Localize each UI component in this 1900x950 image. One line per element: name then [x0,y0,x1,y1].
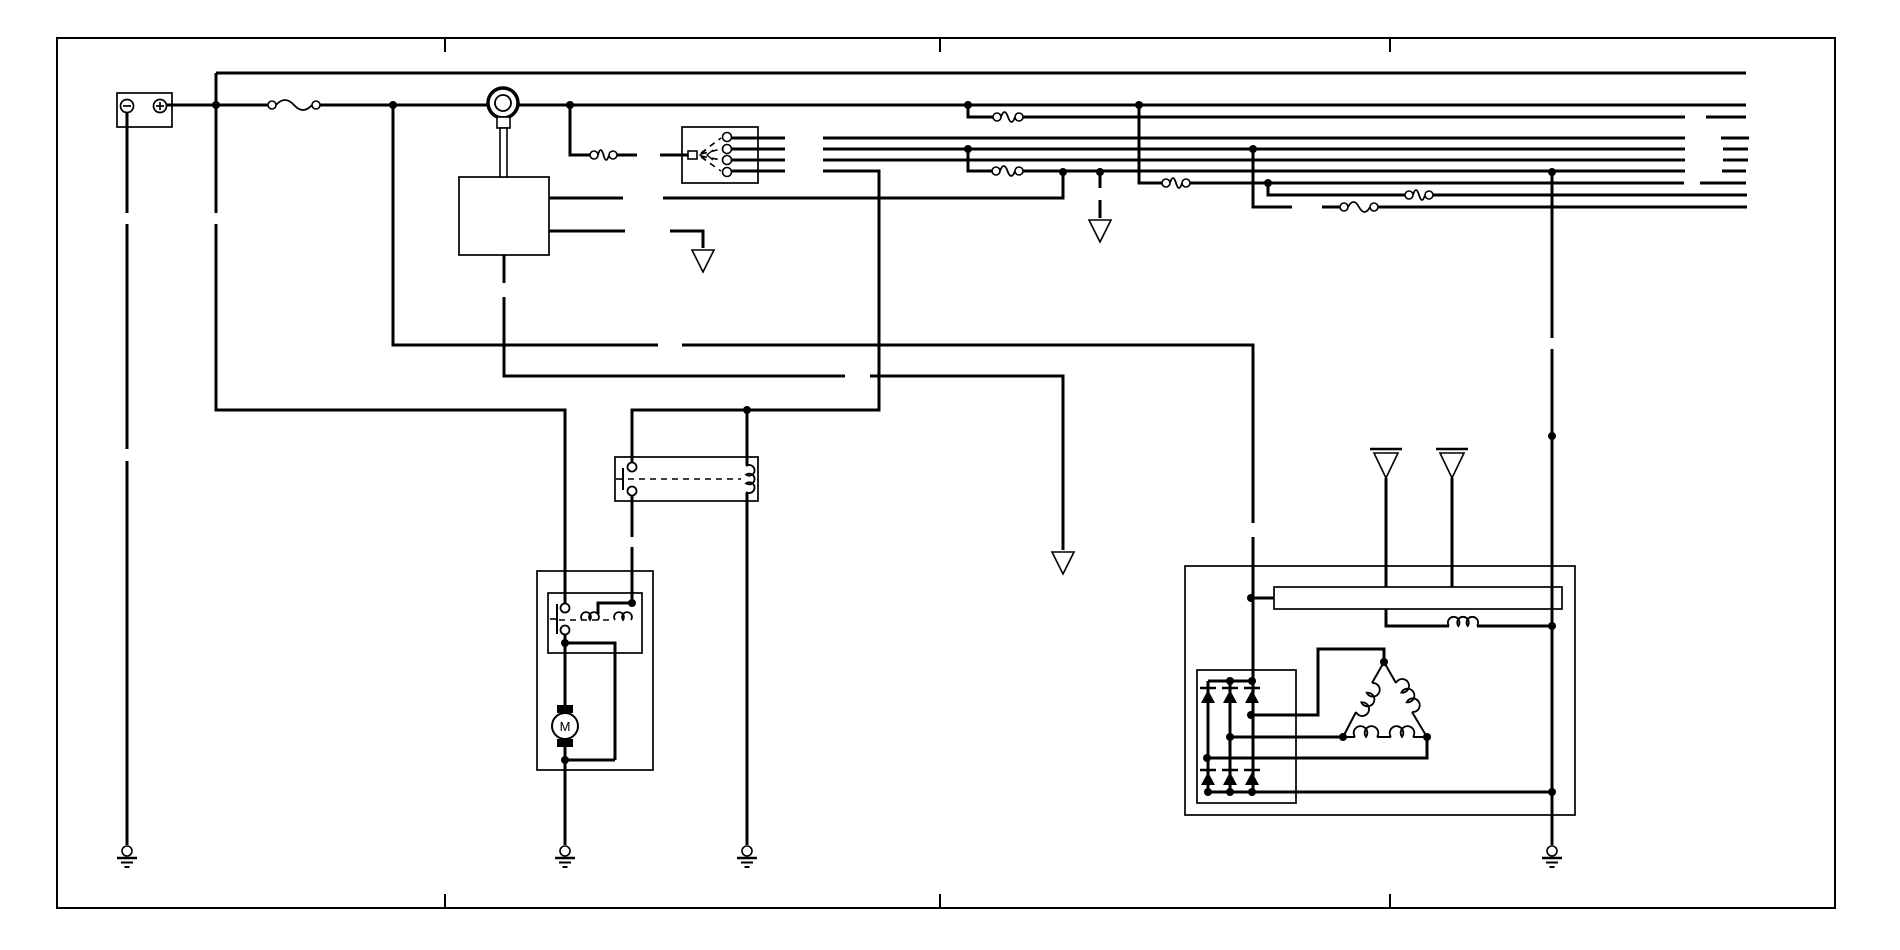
fuse-6-icon [1340,202,1378,212]
fused-line7-feed [1268,183,1405,195]
bus-drop-left-lower [216,224,565,604]
ground-alternator-icon [1542,846,1562,867]
junction-dot-5 [964,145,972,153]
ignition-ray-1 [701,138,721,153]
ground-starter-icon [555,846,575,867]
fusebox-drop-b [504,297,845,376]
fusebox-wire2-b [670,231,703,248]
diagram-border [57,38,1835,908]
ign-line-d2-to-relay [632,171,879,463]
ignition-pin-0 [723,133,732,142]
page-arrow-2-icon [1089,220,1111,242]
ignition-fuse-icon [590,150,617,160]
relay-contact-out-b [598,547,632,614]
junction-dot-29 [1548,788,1556,796]
junction-dot-8 [1096,168,1104,176]
diode-bottom-1-icon [1200,770,1216,785]
ignition-common-contact [688,151,697,159]
fuse-5-icon [1162,178,1190,188]
solenoid-holdin-coil-coil-icon [614,612,632,620]
ring-terminal-stem [500,128,507,177]
junction-dot-21 [1203,754,1211,762]
ring-terminal-lug [497,117,510,128]
ignition-pin-1 [723,145,732,154]
motor-terminal-0 [557,705,573,713]
page-arrow-3-icon [1052,552,1074,574]
ignition-pin-2 [723,156,732,165]
junction-dot-27 [1380,658,1388,666]
wiring-diagram-page: M [0,0,1900,950]
junction-dot-17 [1226,677,1234,685]
junction-dot-19 [1247,711,1255,719]
ground-relay-icon [737,846,757,867]
junction-dot-26 [1423,733,1431,741]
junction-dot-10 [1264,179,1272,187]
page-arrow-1-icon [692,250,714,272]
main-fuse-icon [268,100,320,110]
ring-terminal-inner [495,95,511,111]
alt-connector-2-icon [1440,453,1464,478]
ignition-pin-3 [723,168,732,177]
fuse-4-icon [992,166,1023,176]
wiring-diagram-canvas: M [0,0,1900,950]
junction-dot-11 [743,406,751,414]
delta-left-coil-coil-icon [1355,682,1382,719]
junction-dot-6 [1249,145,1257,153]
junction-dot-9 [1548,168,1556,176]
fused-line1-feed [968,105,993,117]
delta-bottom-coil1-coil-icon [1354,726,1379,737]
fusebox-drop-c [870,376,1063,550]
fusebox-unit [459,177,549,255]
field-coil-coil-icon [1448,617,1478,626]
ignition-feed-a [570,105,590,155]
delta-bottom-coil2-coil-icon [1390,726,1415,737]
alt-b-plus-a [393,105,658,345]
fuse-7-icon [1405,190,1433,200]
junction-dot-14 [561,639,569,647]
junction-dot-20 [1226,733,1234,741]
junction-dot-1 [389,101,397,109]
fused-line6-feed [1253,149,1292,207]
phase1-wire [1207,737,1427,758]
junction-dot-2 [566,101,574,109]
junction-dot-16 [1247,594,1255,602]
junction-dot-23 [1226,788,1234,796]
junction-dot-22 [1204,788,1212,796]
diode-top-3-icon [1244,688,1260,703]
junction-dot-4 [1135,101,1143,109]
junction-dot-3 [964,101,972,109]
ignition-chevron-1 [707,150,713,160]
diode-bottom-3-icon [1244,770,1260,785]
diode-top-2-icon [1222,688,1238,703]
alt-b-plus-b [682,345,1253,523]
junction-dot-24 [1248,788,1256,796]
junction-dot-12 [1548,432,1556,440]
alt-connector-1-icon [1374,453,1398,478]
field-coil-feed [1386,609,1449,626]
junction-dot-18 [1248,677,1256,685]
junction-dot-28 [1548,622,1556,630]
delta-right-coil-coil-icon [1395,677,1422,714]
solenoid-contact-upper [561,604,570,613]
motor-terminal-1 [557,739,573,747]
junction-dot-15 [561,756,569,764]
diode-top-1-icon [1200,688,1216,703]
fusebox-wire1-b [663,172,1063,198]
junction-dot-0 [212,101,220,109]
solenoid-pullin-coil-coil-icon [581,612,599,620]
starter-motor-label: M [560,719,571,734]
ground-battery-icon [117,846,137,867]
fuse-3-icon [993,112,1023,122]
junction-dot-25 [1339,733,1347,741]
junction-dot-7 [1059,168,1067,176]
voltage-regulator-bar [1274,587,1562,609]
starter-motor-box [537,571,653,770]
relay-contact-lower [628,487,637,496]
solenoid-contact-lower [561,626,570,635]
relay-contact-upper [628,463,637,472]
diode-bottom-2-icon [1222,770,1238,785]
relay-coil-coil-icon [746,465,755,493]
junction-dot-13 [628,599,636,607]
